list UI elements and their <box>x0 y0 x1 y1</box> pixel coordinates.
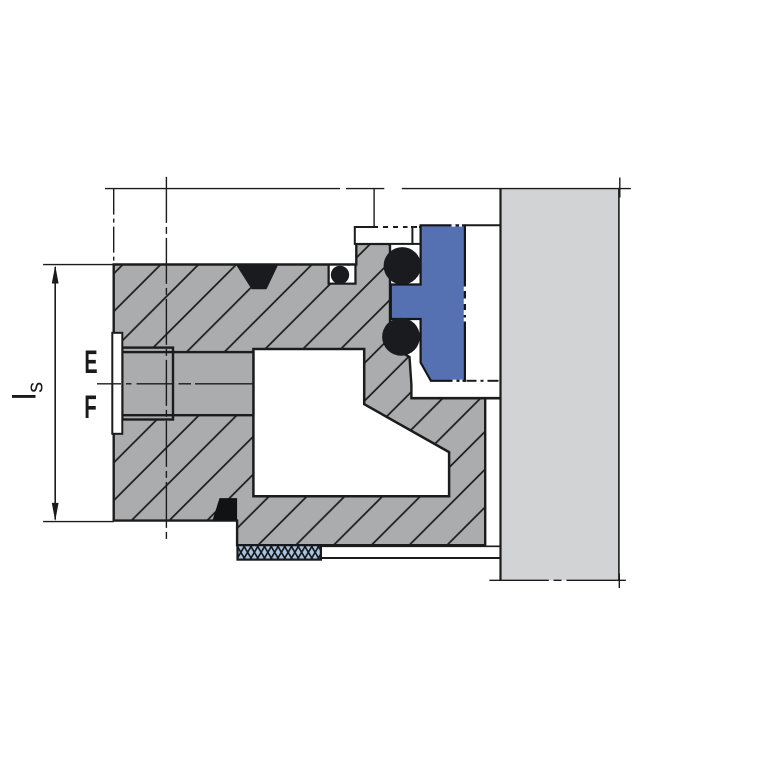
svg-text:E: E <box>84 344 97 380</box>
svg-text:F: F <box>84 389 97 425</box>
